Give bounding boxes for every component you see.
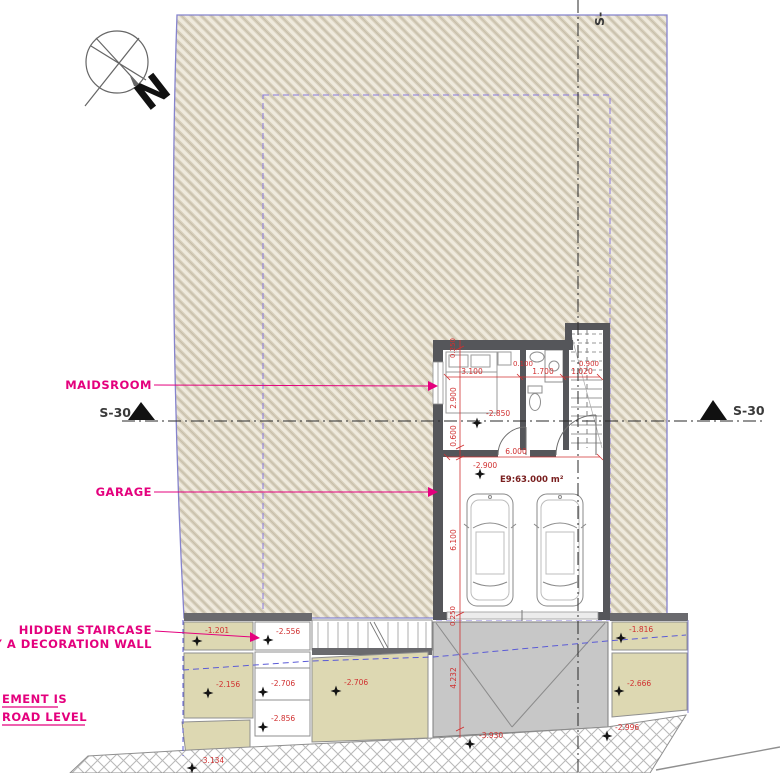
- label-garage: GARAGE: [96, 485, 152, 499]
- section-label-right: S-30: [733, 403, 765, 418]
- car-left: [464, 494, 516, 606]
- elev-plot-left-1: -1.201: [205, 626, 229, 635]
- elev-plot-left-3: -2.156: [216, 680, 240, 689]
- dim-wall-top: 0.250: [449, 338, 457, 358]
- label-hidden-staircase-1: HIDDEN STAIRCASE: [19, 623, 152, 637]
- dim-ramp-length: 4.232: [449, 667, 458, 689]
- section-triangle-right-icon: [700, 400, 727, 420]
- elev-plot-left-4: -2.706: [271, 679, 295, 688]
- dim-stair-run: 0.900: [579, 360, 599, 368]
- elev-plot-right-2: -2.666: [627, 679, 651, 688]
- elev-road-right: -2.996: [615, 723, 639, 732]
- dim-bath-width: 1.700: [532, 367, 554, 376]
- elev-plot-right-1: -1.816: [629, 625, 653, 634]
- garage-door: [447, 610, 598, 621]
- lower-plots: [70, 613, 780, 773]
- label-maidsroom: MAIDSROOM: [65, 378, 152, 392]
- dim-room-depth: 2.900: [449, 387, 458, 409]
- dim-garage-depth: 6.100: [449, 529, 458, 551]
- road-edge: [656, 747, 780, 770]
- section-label-top: S-: [592, 12, 607, 26]
- driveway-ramp: [433, 622, 608, 737]
- label-hidden-staircase-2: BY A DECORATION WALL: [0, 637, 152, 651]
- dim-garage-width: 6.000: [505, 447, 527, 456]
- dim-lower-strip: 0.600: [449, 425, 458, 447]
- label-basement-note-2: ROAD LEVEL: [2, 710, 87, 724]
- elev-road-left: -3.134: [200, 756, 224, 765]
- section-triangle-left-icon: [128, 402, 155, 420]
- site-plan-drawing: N: [0, 0, 780, 773]
- dim-room-width: 3.100: [461, 367, 483, 376]
- elev-plot-left-2: -2.556: [276, 627, 300, 636]
- elev-plot-center: -2.706: [344, 678, 368, 687]
- dim-stair-width: 1.020: [571, 367, 593, 376]
- elev-maidsroom: -2.850: [486, 409, 510, 418]
- elev-plot-left-5: -2.856: [271, 714, 295, 723]
- window: [433, 362, 443, 404]
- site-plan-page: N: [0, 0, 780, 773]
- section-label-left: S-30: [99, 405, 131, 420]
- label-basement-note-1: EMENT IS: [2, 692, 67, 706]
- elev-garage: -2.900: [473, 461, 497, 470]
- hidden-staircase: [312, 620, 432, 655]
- elev-ramp-bottom: -3.930: [479, 731, 503, 740]
- plot-center: [312, 652, 428, 742]
- garage-area-label: E9:63.000 m²: [500, 475, 564, 485]
- retaining-wall-right: [610, 613, 688, 621]
- dim-door-offset: 0.100: [513, 360, 533, 368]
- retaining-wall-left: [184, 613, 312, 621]
- terrace-cell-2: [255, 652, 310, 668]
- dim-wall-bottom: 0.250: [449, 606, 457, 626]
